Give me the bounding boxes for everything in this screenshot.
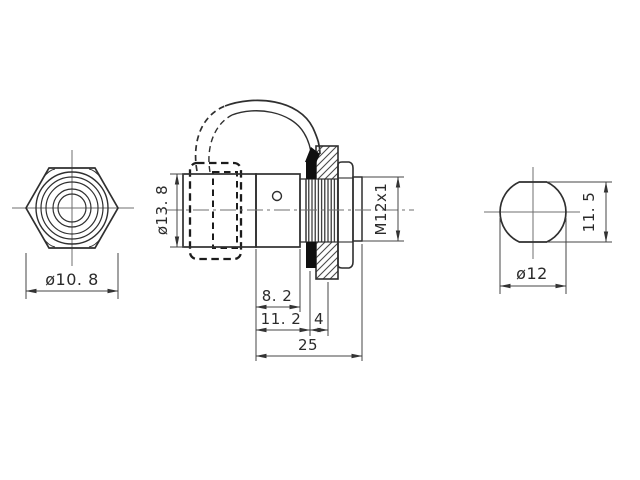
end-view: 11. 5 ø12 [484, 167, 612, 294]
dim-label-to-flange: 11. 2 [261, 310, 302, 328]
dim-label-flange-thickness: 4 [314, 310, 324, 328]
connector-technical-drawing: ø10. 8 ø13 [0, 0, 640, 480]
thread-stub [353, 177, 362, 241]
dim-label-cap-diameter: ø13. 8 [153, 185, 171, 235]
drawing-canvas: ø10. 8 ø13 [0, 0, 640, 480]
dim-label-front-length: 8. 2 [262, 287, 293, 305]
dim-label-end-diameter: ø12 [516, 264, 548, 283]
dim-label-total-length: 25 [298, 336, 318, 354]
lanyard-strap-outer [225, 100, 320, 154]
body-hole [273, 192, 282, 201]
lanyard-strap-inner [232, 111, 312, 159]
protective-cap-outer-dashed [190, 163, 241, 259]
dim-label-hex-diameter: ø10. 8 [45, 270, 99, 289]
dim-label-thread: M12x1 [372, 183, 390, 236]
side-view: ø13. 8 M12x1 8. 2 11. 2 4 25 [153, 100, 414, 361]
dim-label-across-flats: 11. 5 [580, 192, 598, 233]
o-ring-seal-bottom [306, 242, 316, 268]
o-ring-seal-top [306, 162, 316, 179]
lanyard-strap-outer-hidden [196, 106, 225, 171]
front-view: ø10. 8 [12, 150, 134, 299]
